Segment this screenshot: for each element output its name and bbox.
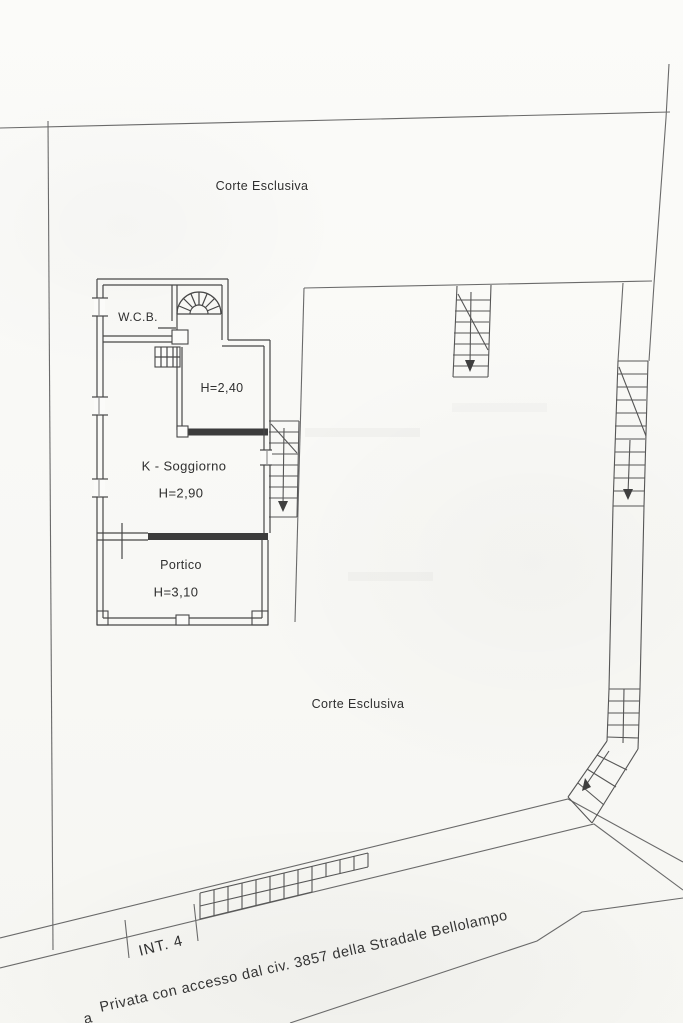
erased-text-smudge	[305, 403, 547, 581]
scanned-floor-plan-page: Corte Esclusiva W.C.B. H=2,40 K - Soggio…	[0, 0, 683, 1023]
room-height-h240: H=2,40	[200, 381, 243, 395]
building-side-stair	[269, 421, 299, 517]
spiral-stair	[177, 292, 221, 314]
courtyard-stair	[453, 285, 491, 377]
down-arrow-icon	[623, 489, 633, 500]
building-walls	[92, 279, 272, 625]
boundary-stair-lower	[568, 689, 640, 823]
room-label-wcb: W.C.B.	[118, 310, 158, 324]
room-height-soggiorno: H=2,90	[159, 486, 204, 501]
court-label-bottom: Corte Esclusiva	[312, 697, 405, 711]
site-plan-drawing	[0, 0, 683, 1023]
court-label-top: Corte Esclusiva	[216, 179, 309, 193]
boundary-stair-upper	[609, 361, 648, 689]
room-height-portico: H=3,10	[154, 585, 199, 600]
road-walkway-steps	[200, 853, 368, 919]
room-label-portico: Portico	[160, 558, 202, 572]
room-label-soggiorno: K - Soggiorno	[142, 459, 227, 474]
down-arrow-icon	[278, 501, 288, 512]
